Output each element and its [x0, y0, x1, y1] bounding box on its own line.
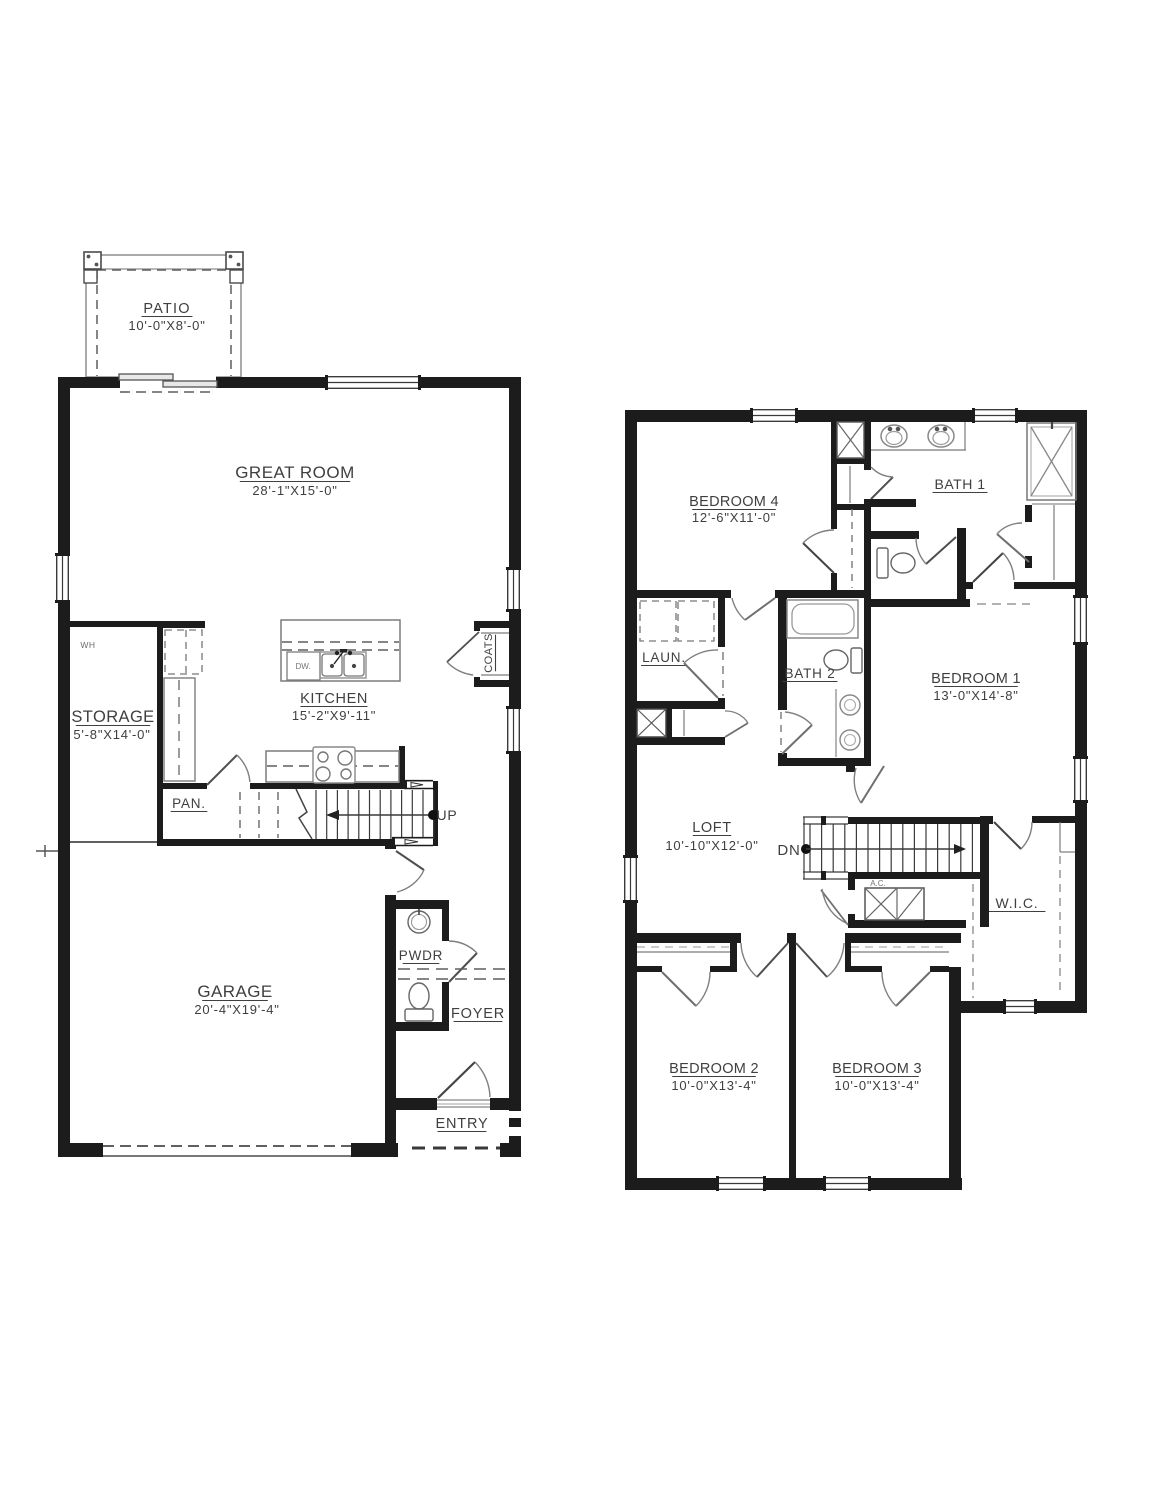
svg-text:12'-6"X11'-0": 12'-6"X11'-0": [692, 510, 776, 525]
svg-text:COATS: COATS: [483, 633, 495, 673]
svg-text:UP: UP: [436, 807, 457, 823]
svg-text:PWDR: PWDR: [399, 948, 443, 963]
svg-text:LOFT: LOFT: [692, 820, 731, 836]
svg-text:ENTRY: ENTRY: [436, 1116, 489, 1132]
svg-text:20'-4"X19'-4": 20'-4"X19'-4": [194, 1002, 279, 1017]
svg-text:BATH 2: BATH 2: [784, 666, 835, 681]
svg-text:28'-1"X15'-0": 28'-1"X15'-0": [252, 483, 337, 498]
svg-text:FOYER: FOYER: [451, 1006, 505, 1022]
svg-text:BATH 1: BATH 1: [935, 476, 986, 492]
svg-text:BEDROOM 3: BEDROOM 3: [832, 1061, 922, 1077]
svg-text:BEDROOM 1: BEDROOM 1: [931, 671, 1021, 687]
svg-text:A.C.: A.C.: [870, 879, 886, 888]
svg-text:KITCHEN: KITCHEN: [300, 691, 368, 707]
svg-text:10'-10"X12'-0": 10'-10"X12'-0": [665, 838, 758, 853]
svg-text:GARAGE: GARAGE: [197, 982, 272, 1001]
svg-text:GREAT ROOM: GREAT ROOM: [235, 463, 355, 482]
svg-text:WH: WH: [80, 640, 95, 650]
svg-text:DN: DN: [777, 842, 800, 859]
svg-text:10'-0"X13'-4": 10'-0"X13'-4": [834, 1078, 919, 1093]
svg-text:PAN.: PAN.: [172, 796, 206, 811]
svg-text:DW.: DW.: [295, 662, 310, 671]
svg-text:PATIO: PATIO: [143, 301, 190, 317]
svg-text:STORAGE: STORAGE: [71, 708, 154, 726]
svg-text:13'-0"X14'-8": 13'-0"X14'-8": [933, 688, 1018, 703]
svg-text:BEDROOM 2: BEDROOM 2: [669, 1061, 759, 1077]
svg-text:BEDROOM 4: BEDROOM 4: [689, 494, 779, 510]
svg-text:5'-8"X14'-0": 5'-8"X14'-0": [73, 727, 150, 742]
svg-text:15'-2"X9'-11": 15'-2"X9'-11": [292, 708, 376, 723]
svg-text:10'-0"X13'-4": 10'-0"X13'-4": [671, 1078, 756, 1093]
svg-text:10'-0"X8'-0": 10'-0"X8'-0": [128, 318, 205, 333]
svg-text:LAUN.: LAUN.: [642, 650, 686, 665]
svg-text:W.I.C.: W.I.C.: [996, 895, 1039, 911]
